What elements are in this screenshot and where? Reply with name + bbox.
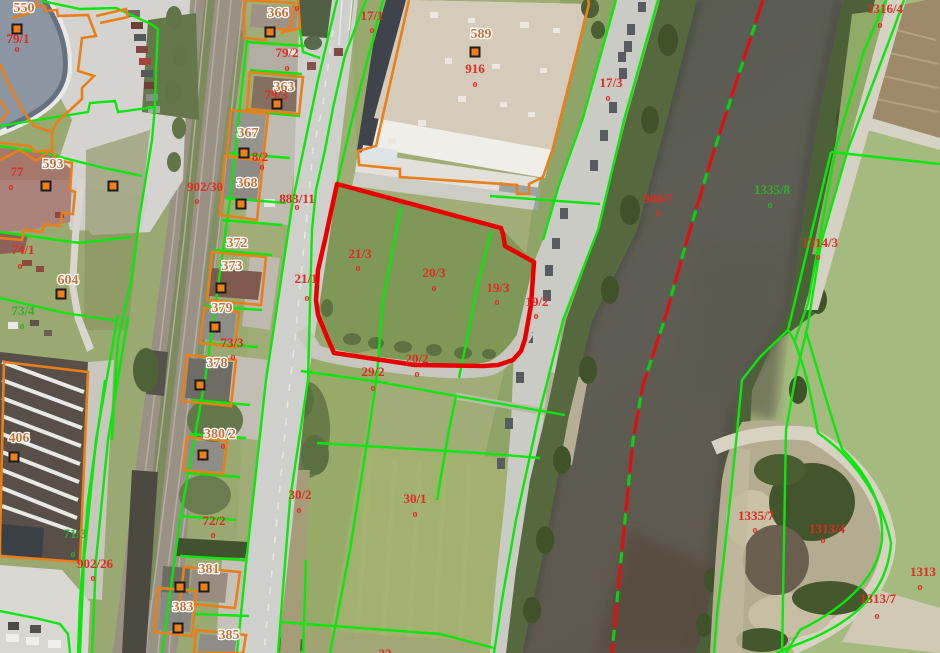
svg-text:77: 77 xyxy=(11,164,25,179)
svg-text:30/2: 30/2 xyxy=(288,487,311,502)
svg-text:1313/4: 1313/4 xyxy=(809,521,846,536)
svg-text:373: 373 xyxy=(222,259,243,274)
svg-text:1316/4: 1316/4 xyxy=(867,1,904,16)
svg-text:1314/3: 1314/3 xyxy=(802,235,839,250)
svg-text:406: 406 xyxy=(9,431,30,446)
svg-text:o: o xyxy=(9,182,14,193)
svg-text:o: o xyxy=(295,202,300,213)
svg-text:o: o xyxy=(371,383,376,394)
svg-text:o: o xyxy=(15,44,20,55)
svg-text:o: o xyxy=(356,263,361,274)
svg-text:72/2: 72/2 xyxy=(202,513,225,528)
svg-text:o: o xyxy=(297,505,302,516)
svg-text:17/3: 17/3 xyxy=(599,75,623,90)
svg-text:378: 378 xyxy=(207,356,228,371)
svg-text:902/30: 902/30 xyxy=(187,179,223,194)
svg-text:1335/8: 1335/8 xyxy=(754,182,791,197)
svg-text:o: o xyxy=(878,20,883,31)
svg-text:o: o xyxy=(432,283,437,294)
svg-text:o: o xyxy=(534,311,539,322)
svg-text:20/3: 20/3 xyxy=(422,265,446,280)
svg-text:380/2: 380/2 xyxy=(204,427,236,442)
svg-text:o: o xyxy=(768,200,773,211)
svg-text:32: 32 xyxy=(379,646,392,653)
svg-text:o: o xyxy=(260,162,265,173)
svg-text:900/7: 900/7 xyxy=(643,191,673,206)
svg-text:71/3: 71/3 xyxy=(63,526,87,541)
svg-text:o: o xyxy=(495,297,500,308)
svg-text:79/2: 79/2 xyxy=(275,45,298,60)
svg-text:30/1: 30/1 xyxy=(403,491,426,506)
svg-text:o: o xyxy=(918,582,923,593)
svg-text:o: o xyxy=(195,196,200,207)
svg-text:19/2: 19/2 xyxy=(525,294,548,309)
svg-text:379: 379 xyxy=(212,301,233,316)
svg-text:604: 604 xyxy=(58,273,79,288)
svg-text:593: 593 xyxy=(43,157,64,172)
svg-text:o: o xyxy=(415,369,420,380)
svg-text:372: 372 xyxy=(227,236,248,251)
svg-text:o: o xyxy=(18,261,23,272)
svg-text:o: o xyxy=(71,549,76,560)
svg-text:o: o xyxy=(221,441,226,452)
svg-text:o: o xyxy=(305,293,310,304)
svg-text:20/2: 20/2 xyxy=(405,351,428,366)
svg-text:1313/7: 1313/7 xyxy=(860,591,897,606)
svg-text:o: o xyxy=(91,573,96,584)
svg-text:o: o xyxy=(20,321,25,332)
svg-text:367: 367 xyxy=(238,126,259,141)
svg-text:366: 366 xyxy=(268,6,289,21)
svg-text:o: o xyxy=(211,530,216,541)
svg-text:o: o xyxy=(821,535,826,546)
svg-text:21/1: 21/1 xyxy=(294,271,317,286)
svg-text:589: 589 xyxy=(471,27,492,42)
svg-text:1335/7: 1335/7 xyxy=(738,508,775,523)
svg-text:916: 916 xyxy=(465,61,485,76)
svg-text:o: o xyxy=(656,208,661,219)
svg-text:21/3: 21/3 xyxy=(348,246,372,261)
svg-text:19/3: 19/3 xyxy=(486,280,510,295)
svg-text:17/1: 17/1 xyxy=(360,8,383,23)
svg-text:74/1: 74/1 xyxy=(11,242,34,257)
svg-text:o: o xyxy=(606,93,611,104)
svg-text:1313: 1313 xyxy=(910,564,937,579)
svg-text:383: 383 xyxy=(173,600,194,615)
svg-text:o: o xyxy=(875,611,880,622)
svg-text:o: o xyxy=(295,3,300,14)
svg-text:o: o xyxy=(231,352,236,363)
svg-text:385: 385 xyxy=(219,628,240,643)
svg-text:902/26: 902/26 xyxy=(77,556,114,571)
svg-text:73/3: 73/3 xyxy=(220,335,244,350)
svg-text:368: 368 xyxy=(237,176,258,191)
svg-text:o: o xyxy=(473,79,478,90)
svg-text:381: 381 xyxy=(199,562,220,577)
svg-text:79/3: 79/3 xyxy=(264,87,288,102)
svg-text:550: 550 xyxy=(14,1,35,16)
svg-text:o: o xyxy=(370,25,375,36)
svg-text:o: o xyxy=(816,252,821,263)
svg-text:29/2: 29/2 xyxy=(361,364,384,379)
svg-text:o: o xyxy=(285,63,290,74)
svg-text:o: o xyxy=(753,525,758,536)
svg-text:73/4: 73/4 xyxy=(11,303,35,318)
svg-text:o: o xyxy=(413,509,418,520)
